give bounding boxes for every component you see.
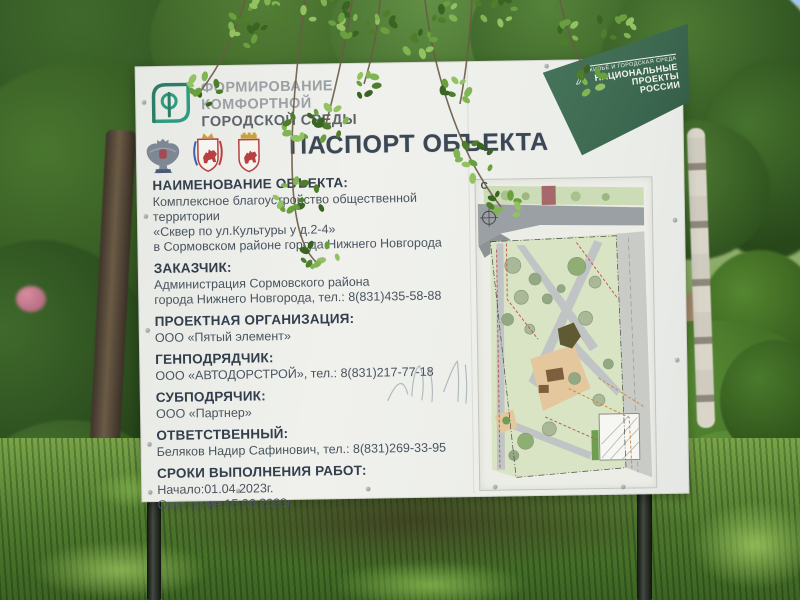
program-logo-text: ФОРМИРОВАНИЕ КОМФОРТНОЙ ГОРОДСКОЙ СРЕДЫ bbox=[201, 77, 412, 131]
national-projects-russia-logo: ЖИЛЬЁ И ГОРОДСКАЯ СРЕДА НАЦИОНАЛЬНЫЕ ПРО… bbox=[573, 54, 681, 104]
birch-leaf bbox=[309, 17, 317, 22]
screw-dot bbox=[673, 218, 677, 222]
birch-leaf bbox=[250, 33, 259, 44]
screw-dot bbox=[148, 442, 152, 446]
birch-leaf bbox=[264, 0, 271, 6]
screw-dot bbox=[148, 490, 152, 494]
birch-leaf bbox=[447, 13, 458, 23]
minstroy-russia-eagle-emblem-icon bbox=[144, 134, 183, 179]
birch-leaf bbox=[442, 0, 452, 8]
birch-leaf bbox=[429, 37, 438, 43]
site-plan-drawing bbox=[475, 177, 656, 490]
birch-leaf bbox=[388, 14, 397, 24]
birch-leaf bbox=[327, 19, 337, 27]
project-passport-sign: ЖИЛЬЁ И ГОРОДСКАЯ СРЕДА НАЦИОНАЛЬНЫЕ ПРО… bbox=[135, 58, 690, 503]
birch-leaf bbox=[337, 12, 346, 24]
birch-leaf bbox=[375, 17, 381, 25]
birch-leaf bbox=[227, 21, 234, 31]
tree-foliage-blob bbox=[16, 286, 46, 312]
screw-dot bbox=[146, 328, 150, 332]
section-line: Комплексное благоустройство общественной… bbox=[153, 190, 471, 225]
birch-leaf bbox=[431, 14, 437, 22]
birch-leaf bbox=[250, 21, 262, 33]
birch-leaf bbox=[374, 13, 380, 21]
birch-leaf bbox=[425, 45, 435, 53]
birch-leaf bbox=[233, 31, 240, 36]
screw-dot bbox=[621, 485, 625, 489]
screw-dot bbox=[366, 487, 370, 491]
birch-leaf bbox=[437, 3, 445, 14]
birch-leaf bbox=[345, 31, 354, 40]
birch-leaf bbox=[250, 0, 261, 8]
birch-leaf bbox=[367, 29, 377, 35]
screw-dot bbox=[236, 489, 240, 493]
national-projects-arrow-icon bbox=[573, 67, 585, 90]
birch-leaf bbox=[449, 2, 458, 11]
birch-leaf bbox=[365, 20, 370, 27]
birch-leaf bbox=[248, 2, 258, 10]
birch-leaf bbox=[229, 27, 236, 37]
screw-dot bbox=[493, 485, 497, 489]
birch-leaf bbox=[350, 30, 360, 39]
map-north-label: С bbox=[480, 181, 487, 192]
birch-leaf bbox=[352, 13, 358, 21]
section-line: Беляков Надир Сафинович, тел.: 8(831)269… bbox=[157, 440, 475, 460]
screw-dot bbox=[144, 214, 148, 218]
birch-leaf bbox=[401, 45, 413, 57]
page-title: ПАСПОРТ ОБЪЕКТА bbox=[284, 128, 554, 161]
section-work-schedule: СРОКИ ВЫПОЛНЕНИЯ РАБОТ: Начало:01.04.202… bbox=[157, 461, 476, 513]
birch-leaf bbox=[319, 0, 328, 7]
birch-leaf bbox=[245, 24, 255, 36]
tree-foliage-blob bbox=[5, 190, 100, 285]
birch-leaf bbox=[418, 47, 428, 60]
birch-leaf bbox=[427, 31, 432, 38]
birch-leaf bbox=[273, 14, 282, 21]
nizhny-novgorod-city-coat-of-arms-icon bbox=[234, 132, 265, 176]
birch-leaf bbox=[335, 22, 347, 32]
birch-leaf bbox=[381, 9, 392, 18]
birch-leaf bbox=[340, 0, 352, 12]
emblems-row bbox=[144, 130, 275, 178]
birch-leaf bbox=[227, 11, 238, 22]
screw-dot bbox=[675, 358, 679, 362]
section-object-name: НАИМЕНОВАНИЕ ОБЪЕКТА: Комплексное благоу… bbox=[152, 173, 471, 255]
birch-leaf bbox=[247, 4, 256, 12]
tree-foliage-blob bbox=[700, 250, 800, 380]
birch-leaf bbox=[410, 31, 419, 40]
birch-leaf bbox=[239, 14, 252, 25]
birch-leaf bbox=[473, 0, 482, 8]
park-photo-scene: ЖИЛЬЁ И ГОРОДСКАЯ СРЕДА НАЦИОНАЛЬНЫЕ ПРО… bbox=[0, 0, 800, 600]
birch-leaf bbox=[379, 26, 391, 36]
site-plan-map: С bbox=[474, 176, 657, 491]
section-customer: ЗАКАЗЧИК: Администрация Сормовского райо… bbox=[154, 256, 473, 308]
birch-leaf bbox=[417, 28, 423, 36]
birch-leaf bbox=[271, 1, 280, 8]
sign-text-sections: НАИМЕНОВАНИЕ ОБЪЕКТА: Комплексное благоу… bbox=[152, 173, 475, 513]
birch-leaf bbox=[300, 5, 307, 16]
birch-leaf bbox=[234, 16, 243, 26]
birch-leaf bbox=[272, 3, 281, 14]
sign-post-right bbox=[637, 482, 652, 600]
birch-leaf bbox=[387, 18, 399, 30]
birch-leaf bbox=[338, 28, 350, 40]
program-logo-line: ГОРОДСКОЙ СРЕДЫ bbox=[201, 111, 411, 131]
graffiti-scribble bbox=[377, 347, 488, 419]
section-responsible-person: ОТВЕТСТВЕННЫЙ: Беляков Надир Сафинович, … bbox=[156, 423, 474, 460]
screw-dot bbox=[545, 64, 549, 68]
screw-dot bbox=[142, 100, 146, 104]
birch-leaf bbox=[260, 24, 269, 32]
section-design-organization: ПРОЕКТНАЯ ОРГАНИЗАЦИЯ: ООО «Пятый элемен… bbox=[155, 309, 473, 346]
birch-leaf bbox=[409, 34, 421, 45]
section-line: ООО «Пятый элемент» bbox=[155, 326, 473, 346]
birch-leaf bbox=[338, 17, 347, 26]
birch-leaf bbox=[242, 42, 251, 50]
birch-leaf bbox=[341, 9, 351, 19]
birch-leaf bbox=[437, 17, 447, 24]
birch-leaf bbox=[334, 0, 342, 1]
nizhny-novgorod-region-coat-of-arms-icon bbox=[191, 131, 226, 178]
tree-foliage-blob bbox=[0, 296, 99, 396]
comfortable-urban-environment-logo-icon bbox=[143, 77, 196, 130]
birch-leaf bbox=[326, 0, 336, 3]
